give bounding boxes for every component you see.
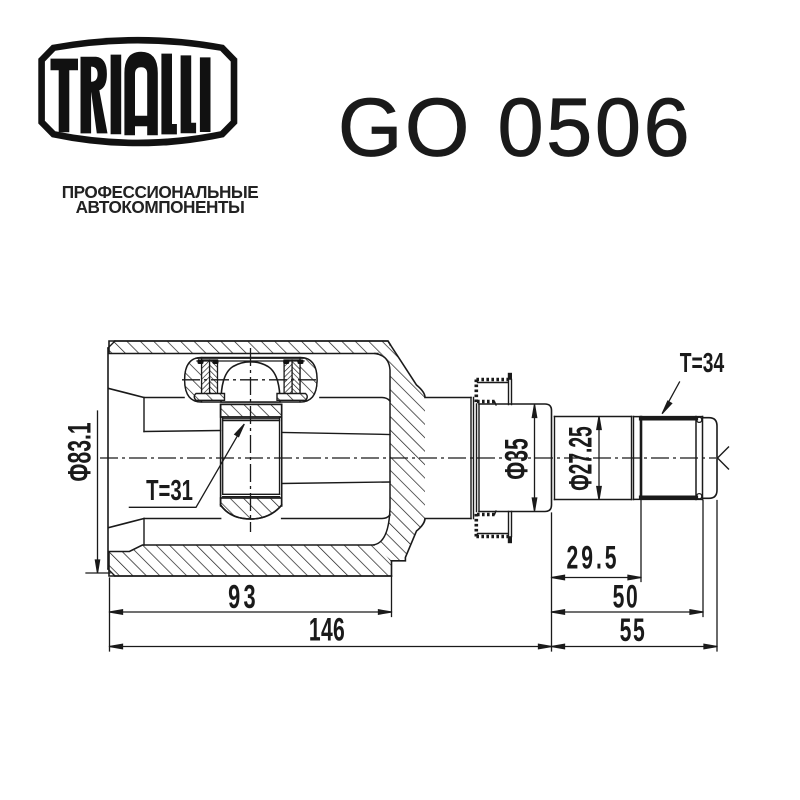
svg-text:50: 50 — [613, 578, 640, 615]
svg-text:29.5: 29.5 — [567, 539, 620, 576]
svg-text:146: 146 — [309, 611, 345, 648]
svg-text:T=34: T=34 — [680, 349, 725, 379]
svg-text:GO 0506: GO 0506 — [338, 81, 692, 174]
svg-text:93: 93 — [228, 578, 259, 615]
svg-text:Ф35: Ф35 — [498, 438, 535, 480]
svg-text:Ф83.1: Ф83.1 — [61, 422, 98, 481]
svg-text:Ф27.25: Ф27.25 — [562, 426, 598, 490]
svg-text:АВТОКОМПОНЕНТЫ: АВТОКОМПОНЕНТЫ — [76, 197, 245, 217]
svg-text:55: 55 — [620, 611, 647, 648]
svg-text:T=31: T=31 — [146, 475, 193, 507]
